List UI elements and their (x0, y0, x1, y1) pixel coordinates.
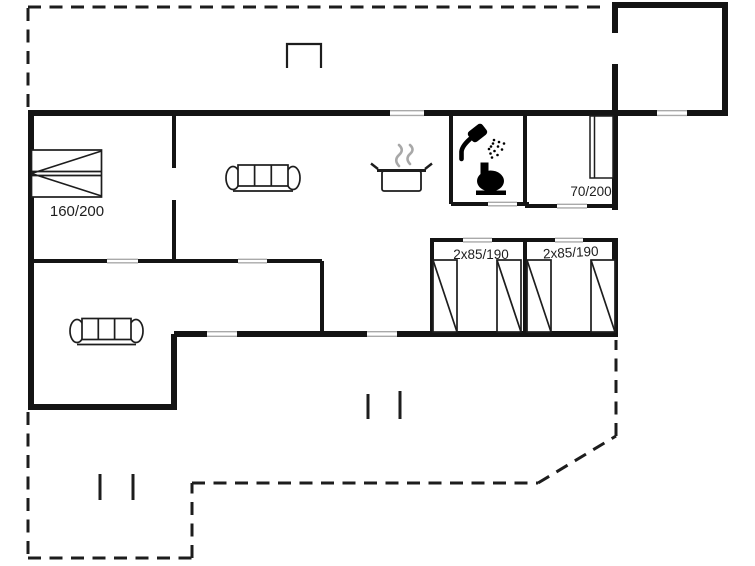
double-bed-label: 160/200 (50, 203, 104, 220)
double-bed-icon (32, 150, 102, 197)
bunk-bed-icon (433, 260, 457, 332)
single-bed-label: 70/200 (570, 184, 611, 199)
bunk-bed-icon (497, 260, 521, 332)
bunk-bed-label-left: 2x85/190 (453, 247, 509, 262)
bunk-bed-icon (591, 260, 615, 332)
bunk-bed-label-right: 2x85/190 (543, 244, 599, 262)
floorplan-background (0, 0, 755, 566)
single-bed-icon (590, 116, 613, 178)
floorplan-canvas: 160/200 (0, 0, 755, 566)
floorplan-page: 160/200 (0, 0, 755, 566)
bunk-bed-icon (527, 260, 551, 332)
